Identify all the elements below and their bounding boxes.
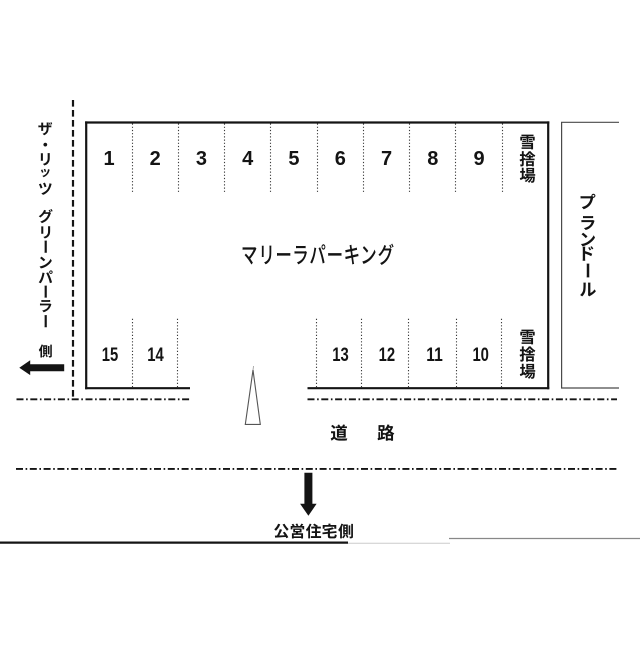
svg-text:4: 4 (242, 148, 254, 170)
svg-text:3: 3 (196, 148, 207, 170)
svg-text:7: 7 (381, 148, 392, 170)
svg-text:8: 8 (427, 148, 438, 170)
svg-text:2: 2 (150, 148, 161, 170)
svg-text:1: 1 (103, 148, 114, 170)
svg-text:10: 10 (472, 344, 489, 366)
svg-text:13: 13 (332, 344, 349, 366)
svg-text:5: 5 (288, 148, 299, 170)
svg-text:9: 9 (473, 148, 484, 170)
svg-text:6: 6 (335, 148, 346, 170)
svg-text:11: 11 (426, 344, 443, 366)
svg-text:12: 12 (379, 344, 396, 366)
svg-text:14: 14 (147, 344, 164, 366)
svg-text:15: 15 (102, 344, 119, 366)
